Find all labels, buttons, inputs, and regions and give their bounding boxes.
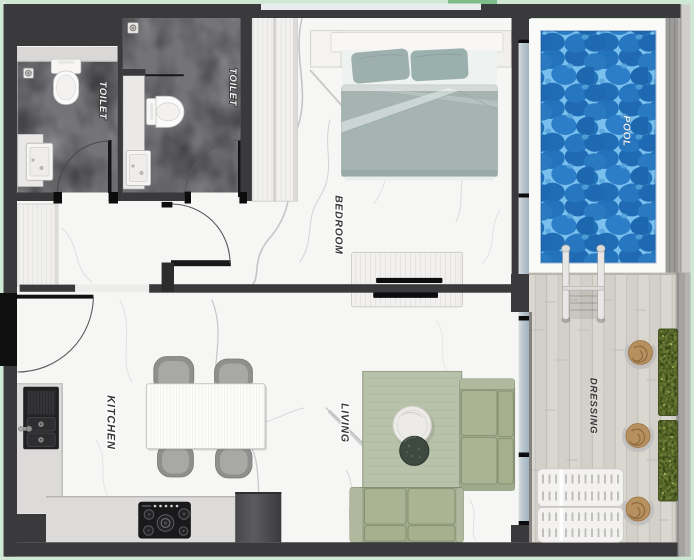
svg-text:LIVING: LIVING (339, 403, 351, 443)
svg-text:POOL: POOL (621, 116, 632, 148)
svg-text:DRESSING: DRESSING (588, 378, 599, 435)
svg-text:BEDROOM: BEDROOM (333, 195, 344, 254)
svg-text:TOILET: TOILET (97, 81, 108, 120)
svg-text:KITCHEN: KITCHEN (105, 395, 117, 450)
svg-text:TOILET: TOILET (227, 68, 238, 107)
